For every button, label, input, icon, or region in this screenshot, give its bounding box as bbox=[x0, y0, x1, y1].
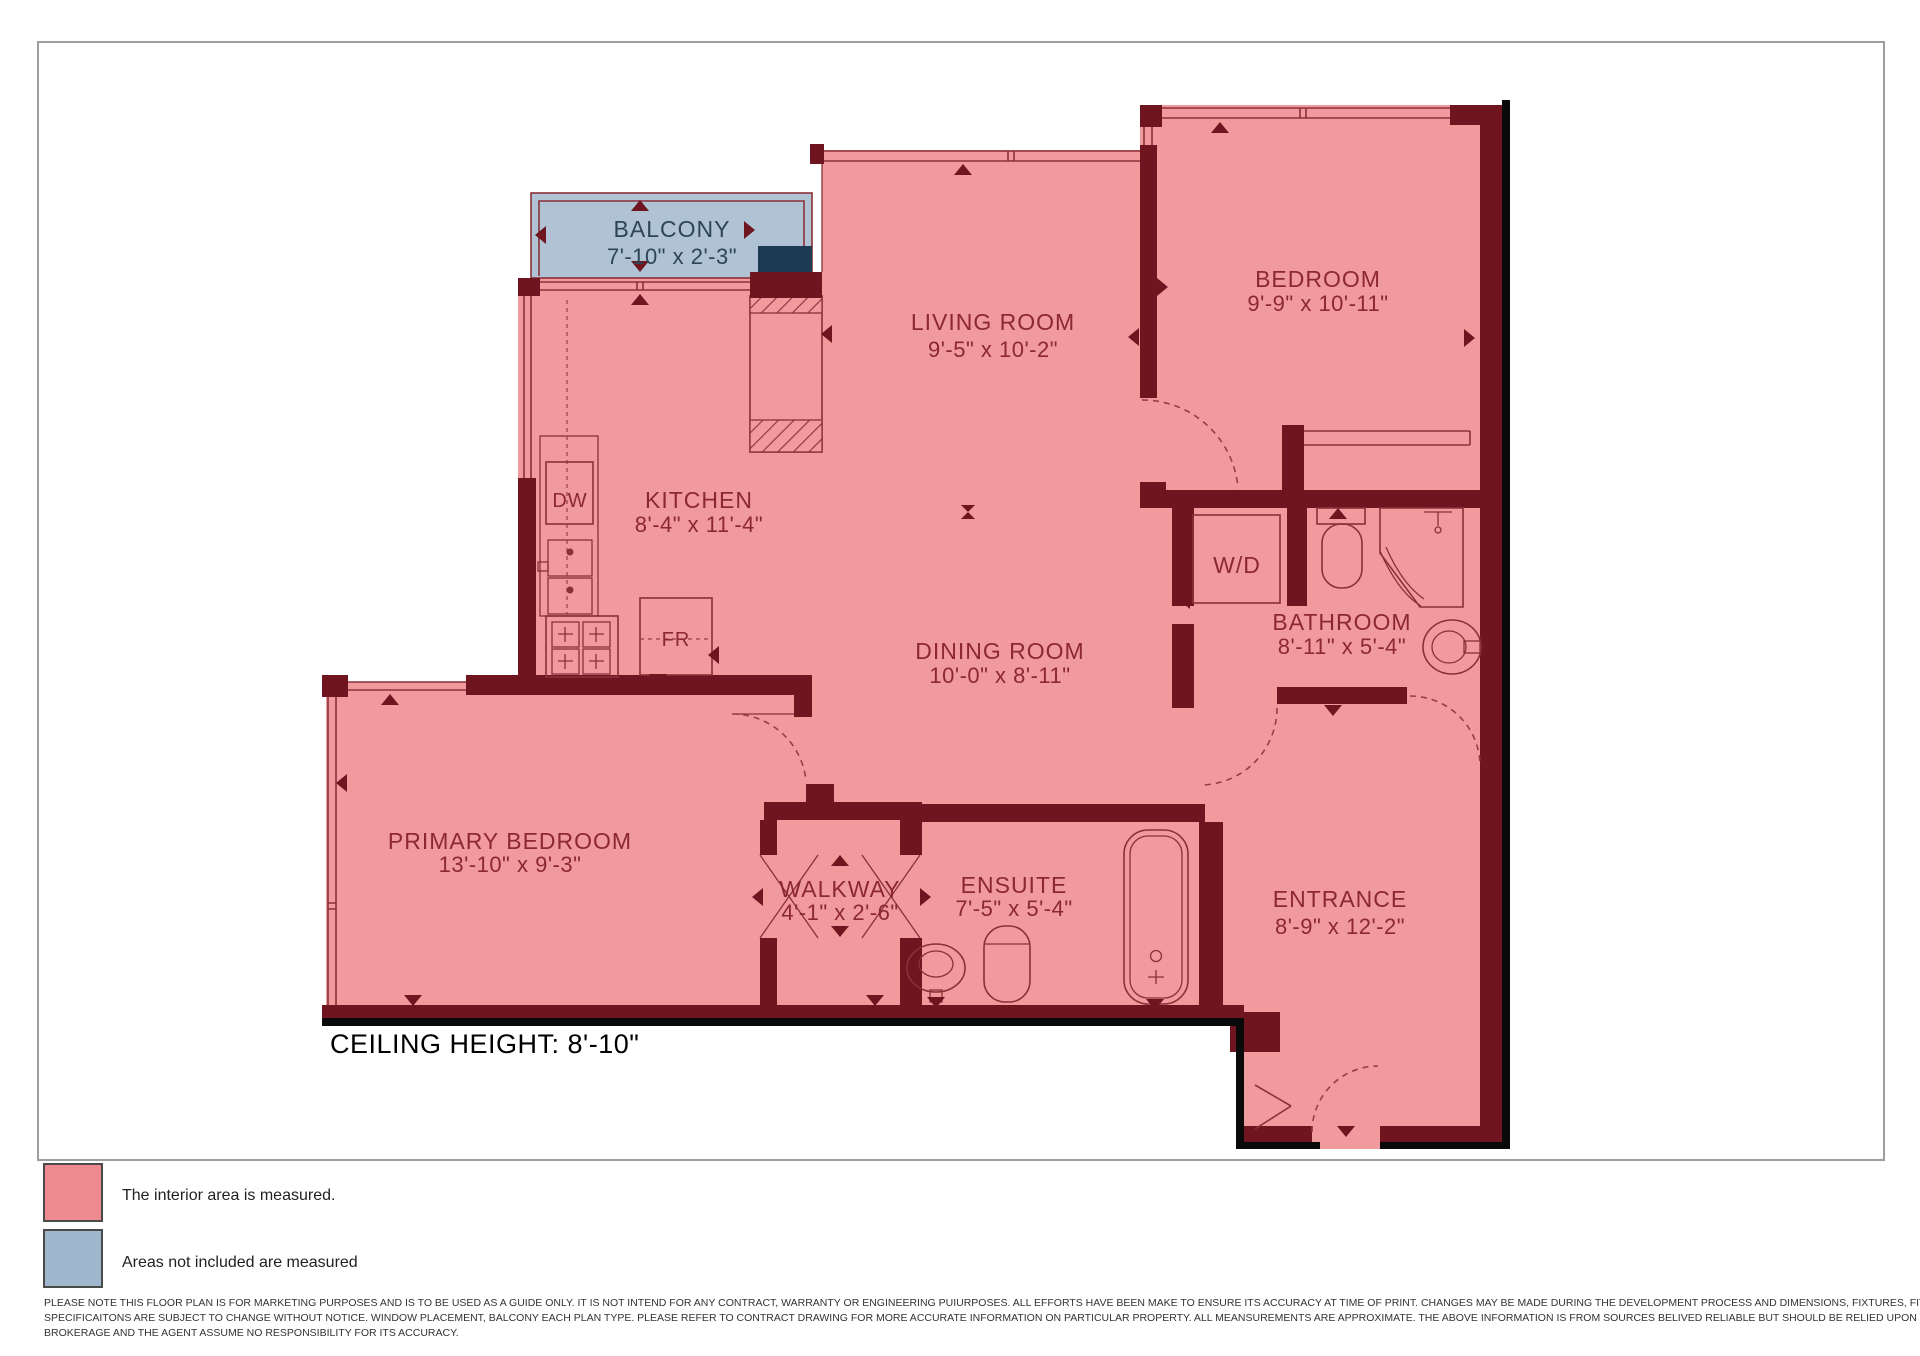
legend-excluded-label: Areas not included are measured bbox=[122, 1254, 358, 1271]
washer-dryer-label: W/D bbox=[1213, 552, 1261, 578]
living-room-dims: 9'-5" x 10'-2" bbox=[928, 337, 1058, 362]
ceiling-height-note: CEILING HEIGHT: 8'-10" bbox=[330, 1029, 639, 1059]
living-room-label: LIVING ROOM bbox=[911, 309, 1075, 335]
ensuite-dims: 7'-5" x 5'-4" bbox=[955, 896, 1072, 921]
entrance-label: ENTRANCE bbox=[1273, 886, 1408, 912]
floor-plan: BALCONY 7'-10" x 2'-3" LIVING ROOM 9'-5"… bbox=[0, 0, 1920, 1356]
dining-room-dims: 10'-0" x 8'-11" bbox=[929, 663, 1070, 688]
dishwasher-label: DW bbox=[552, 490, 587, 512]
ensuite-label: ENSUITE bbox=[961, 872, 1068, 898]
walkway-label: WALKWAY bbox=[779, 876, 900, 902]
bedroom-label: BEDROOM bbox=[1255, 266, 1381, 292]
fridge-label: FR bbox=[662, 629, 691, 651]
legend-interior-label: The interior area is measured. bbox=[122, 1187, 335, 1204]
walkway-dims: 4'-1" x 2'-6" bbox=[781, 900, 898, 925]
entrance-dims: 8'-9" x 12'-2" bbox=[1275, 914, 1405, 939]
bathroom-label: BATHROOM bbox=[1272, 609, 1411, 635]
legend-interior-swatch bbox=[44, 1164, 102, 1221]
disclaimer-line-2: SPECIFICAITONS ARE SUBJECT TO CHANGE WIT… bbox=[44, 1312, 1920, 1324]
bedroom-dims: 9'-9" x 10'-11" bbox=[1247, 291, 1388, 316]
dining-room-label: DINING ROOM bbox=[915, 638, 1084, 664]
balcony-dims: 7'-10" x 2'-3" bbox=[607, 244, 737, 269]
kitchen-label: KITCHEN bbox=[645, 487, 753, 513]
disclaimer-line-3: BROKERAGE AND THE AGENT ASSUME NO RESPON… bbox=[44, 1327, 459, 1339]
kitchen-dims: 8'-4" x 11'-4" bbox=[635, 512, 763, 537]
disclaimer-line-1: PLEASE NOTE THIS FLOOR PLAN IS FOR MARKE… bbox=[44, 1297, 1920, 1309]
bathroom-dims: 8'-11" x 5'-4" bbox=[1278, 634, 1406, 659]
legend-excluded-swatch bbox=[44, 1230, 102, 1287]
primary-bedroom-label: PRIMARY BEDROOM bbox=[388, 828, 632, 854]
primary-bedroom-dims: 13'-10" x 9'-3" bbox=[439, 852, 582, 877]
balcony-label: BALCONY bbox=[614, 216, 731, 242]
